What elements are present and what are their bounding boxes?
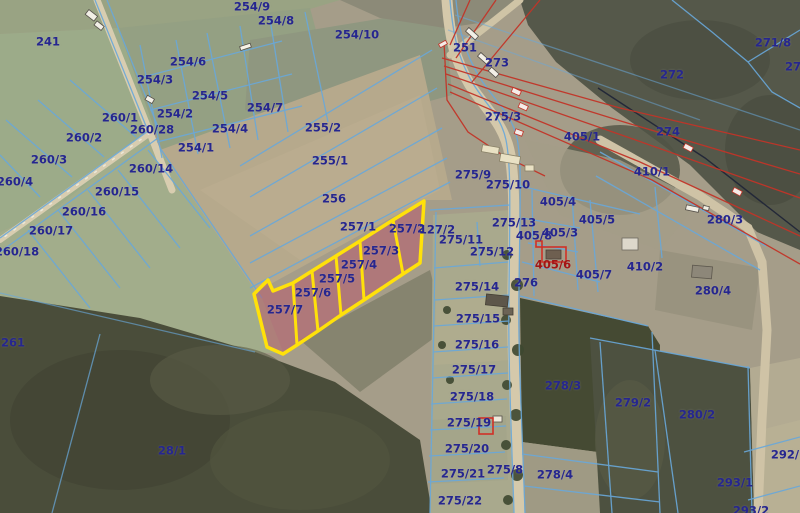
parcel-label: 260/16 [62,206,106,218]
parcel-label: 275/19 [447,417,491,429]
parcel-label: 241 [36,36,60,48]
parcel-label: 260/15 [95,186,139,198]
parcel-label: 274 [656,126,680,138]
parcel-label: 275/10 [486,179,530,191]
parcel-label: 255/2 [305,122,341,134]
parcel-label: 254/3 [137,74,173,86]
parcel-label: 405/3 [542,227,578,239]
parcel-label: 405/6 [535,259,571,271]
parcel-label: 405/5 [579,214,615,226]
parcel-label: 260/14 [129,163,173,175]
parcel-label: 257/5 [319,273,355,285]
parcel-label: 260/2 [66,132,102,144]
parcel-label: 275/16 [455,339,499,351]
parcel-label: 254/4 [212,123,248,135]
parcel-label: 275/12 [470,246,514,258]
parcel-label: 275/15 [456,313,500,325]
parcel-label: 260/17 [29,225,73,237]
parcel-label: 275/18 [450,391,494,403]
parcel-label: 254/6 [170,56,206,68]
parcel-label: 260/28 [130,124,174,136]
parcel-label: 293/2 [733,505,769,513]
parcel-label: 280/4 [695,285,731,297]
parcel-label: 260/18 [0,246,39,258]
parcel-label: 254/5 [192,90,228,102]
parcel-label: 275/3 [485,111,521,123]
parcel-label: 27 [785,61,800,73]
parcel-label: 280/3 [707,214,743,226]
parcel-label: 254/8 [258,15,294,27]
parcel-label: 410/1 [634,166,670,178]
parcel-label: 260/3 [31,154,67,166]
parcel-label: 278/3 [545,380,581,392]
parcel-label: 256 [322,193,346,205]
parcel-label: 251 [453,42,477,54]
parcel-label: 276 [514,277,538,289]
parcel-label: 257/7 [267,304,303,316]
parcel-label: 257/1 [340,221,376,233]
parcel-label: 254/9 [234,1,270,13]
parcel-label: 257/6 [295,287,331,299]
parcel-label: 28/1 [158,445,186,457]
parcel-label: 275/17 [452,364,496,376]
parcel-label: 255/1 [312,155,348,167]
parcel-label: 272 [660,69,684,81]
parcel-label: 293/1 [717,477,753,489]
parcel-label: 280/2 [679,409,715,421]
parcel-label: 254/2 [157,108,193,120]
parcel-label: 275/22 [438,495,482,507]
parcel-label: 405/4 [540,196,576,208]
parcel-label: 275/21 [441,468,485,480]
parcel-label: 275/14 [455,281,499,293]
parcel-label: 254/7 [247,102,283,114]
parcel-label: 271/8 [755,37,791,49]
parcel-label: 410/2 [627,261,663,273]
parcel-label: 275/20 [445,443,489,455]
parcel-label: 279/2 [615,397,651,409]
parcel-label: 260/4 [0,176,33,188]
parcel-label: 261 [1,337,25,349]
parcel-label: 278/4 [537,469,573,481]
parcel-label: 273 [485,57,509,69]
parcel-labels-layer: 241254/9254/8254/10251271/827273272254/6… [0,0,800,513]
map-canvas[interactable]: 241254/9254/8254/10251271/827273272254/6… [0,0,800,513]
parcel-label: 257/4 [341,259,377,271]
parcel-label: 254/1 [178,142,214,154]
parcel-label: 257/3 [363,245,399,257]
parcel-label: 275/8 [487,464,523,476]
parcel-label: 405/7 [576,269,612,281]
parcel-label: 275/13 [492,217,536,229]
parcel-label: 254/10 [335,29,379,41]
parcel-label: 292/2 [771,449,800,461]
parcel-label: 405/1 [564,131,600,143]
